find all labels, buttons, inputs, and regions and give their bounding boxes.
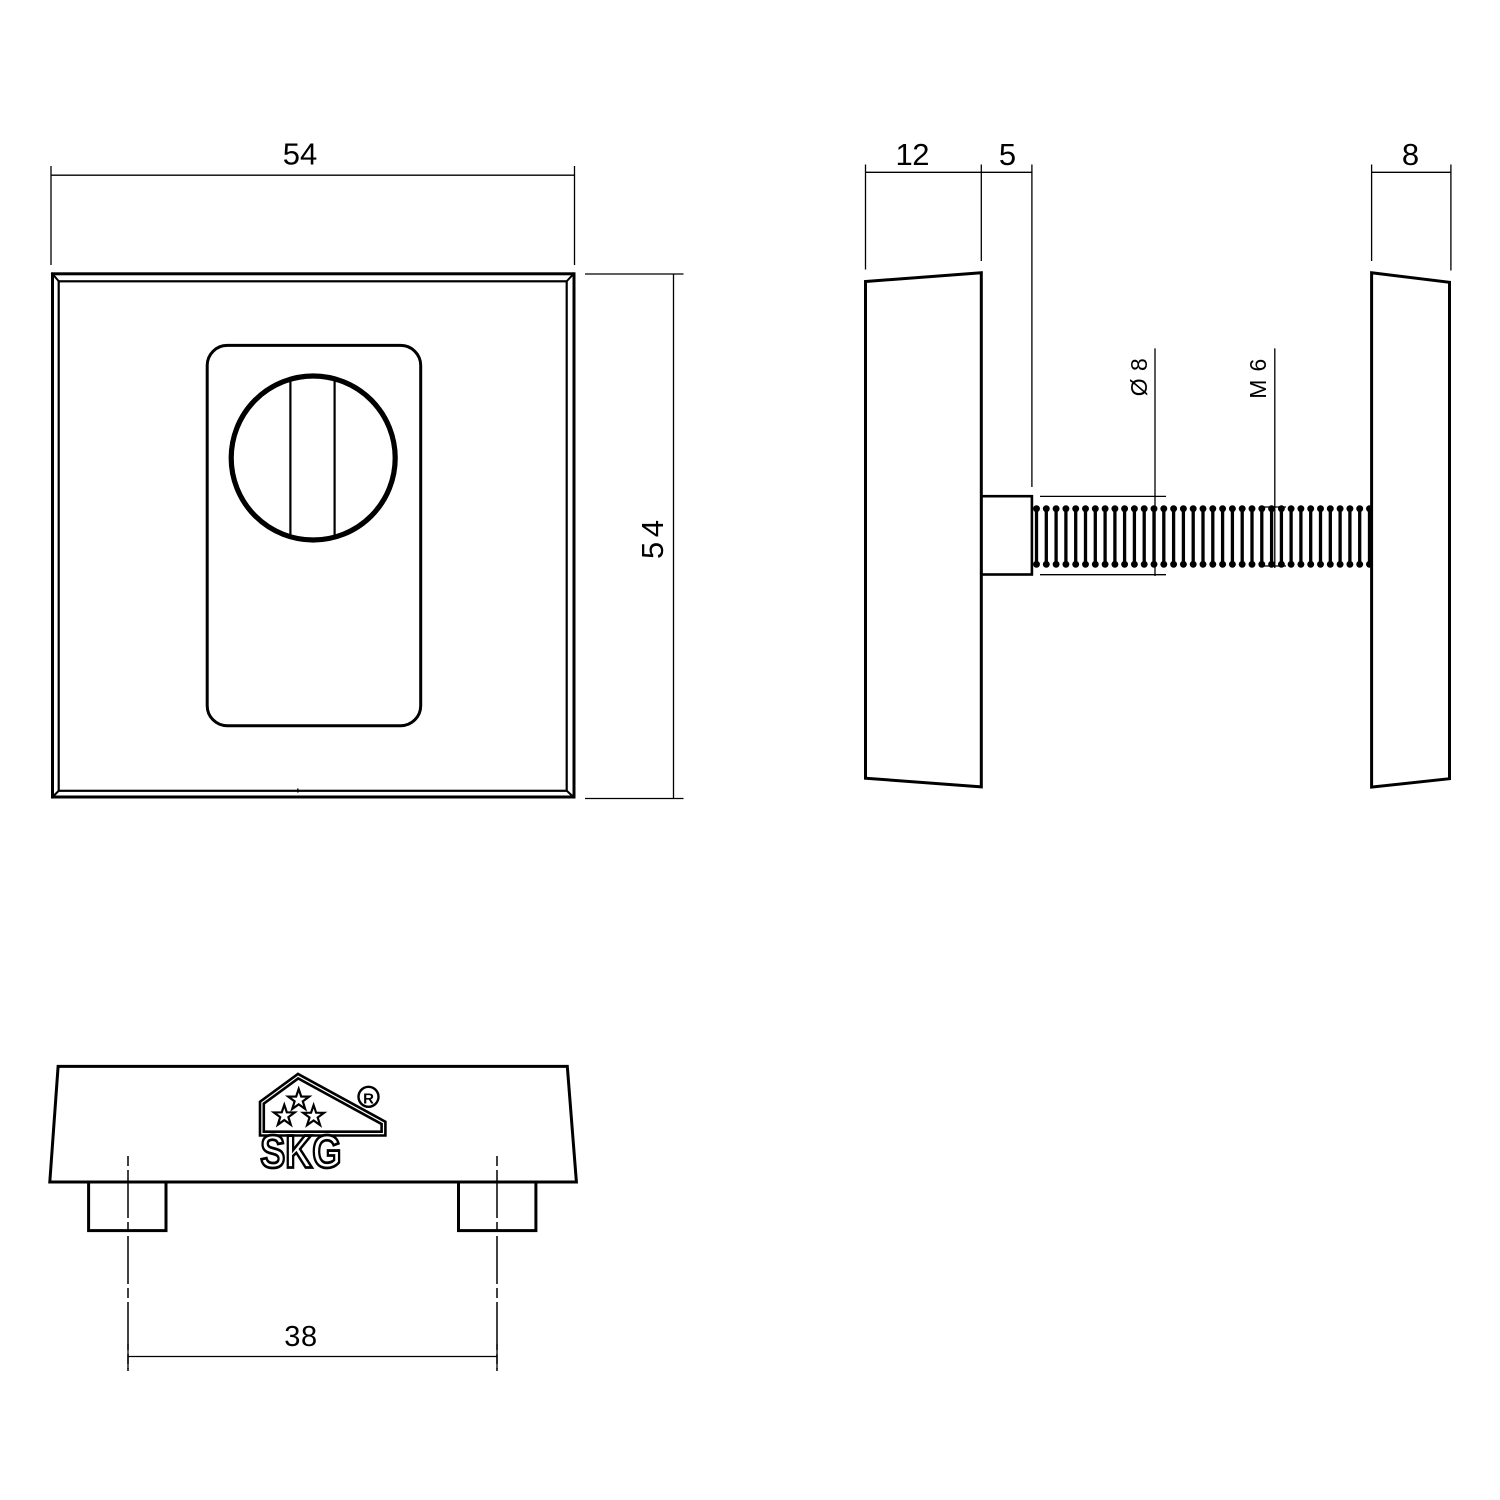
svg-text:54: 54 [635,520,670,559]
svg-text:Ø8: Ø8 [1126,358,1152,396]
svg-text:54: 54 [283,137,317,172]
svg-text:R: R [363,1090,374,1107]
svg-text:8: 8 [1402,137,1419,172]
svg-text:5: 5 [999,137,1016,172]
svg-text:M6: M6 [1245,359,1271,399]
svg-text:SKG: SKG [260,1126,341,1178]
svg-text:12: 12 [896,137,930,172]
svg-text:38: 38 [284,1321,317,1353]
